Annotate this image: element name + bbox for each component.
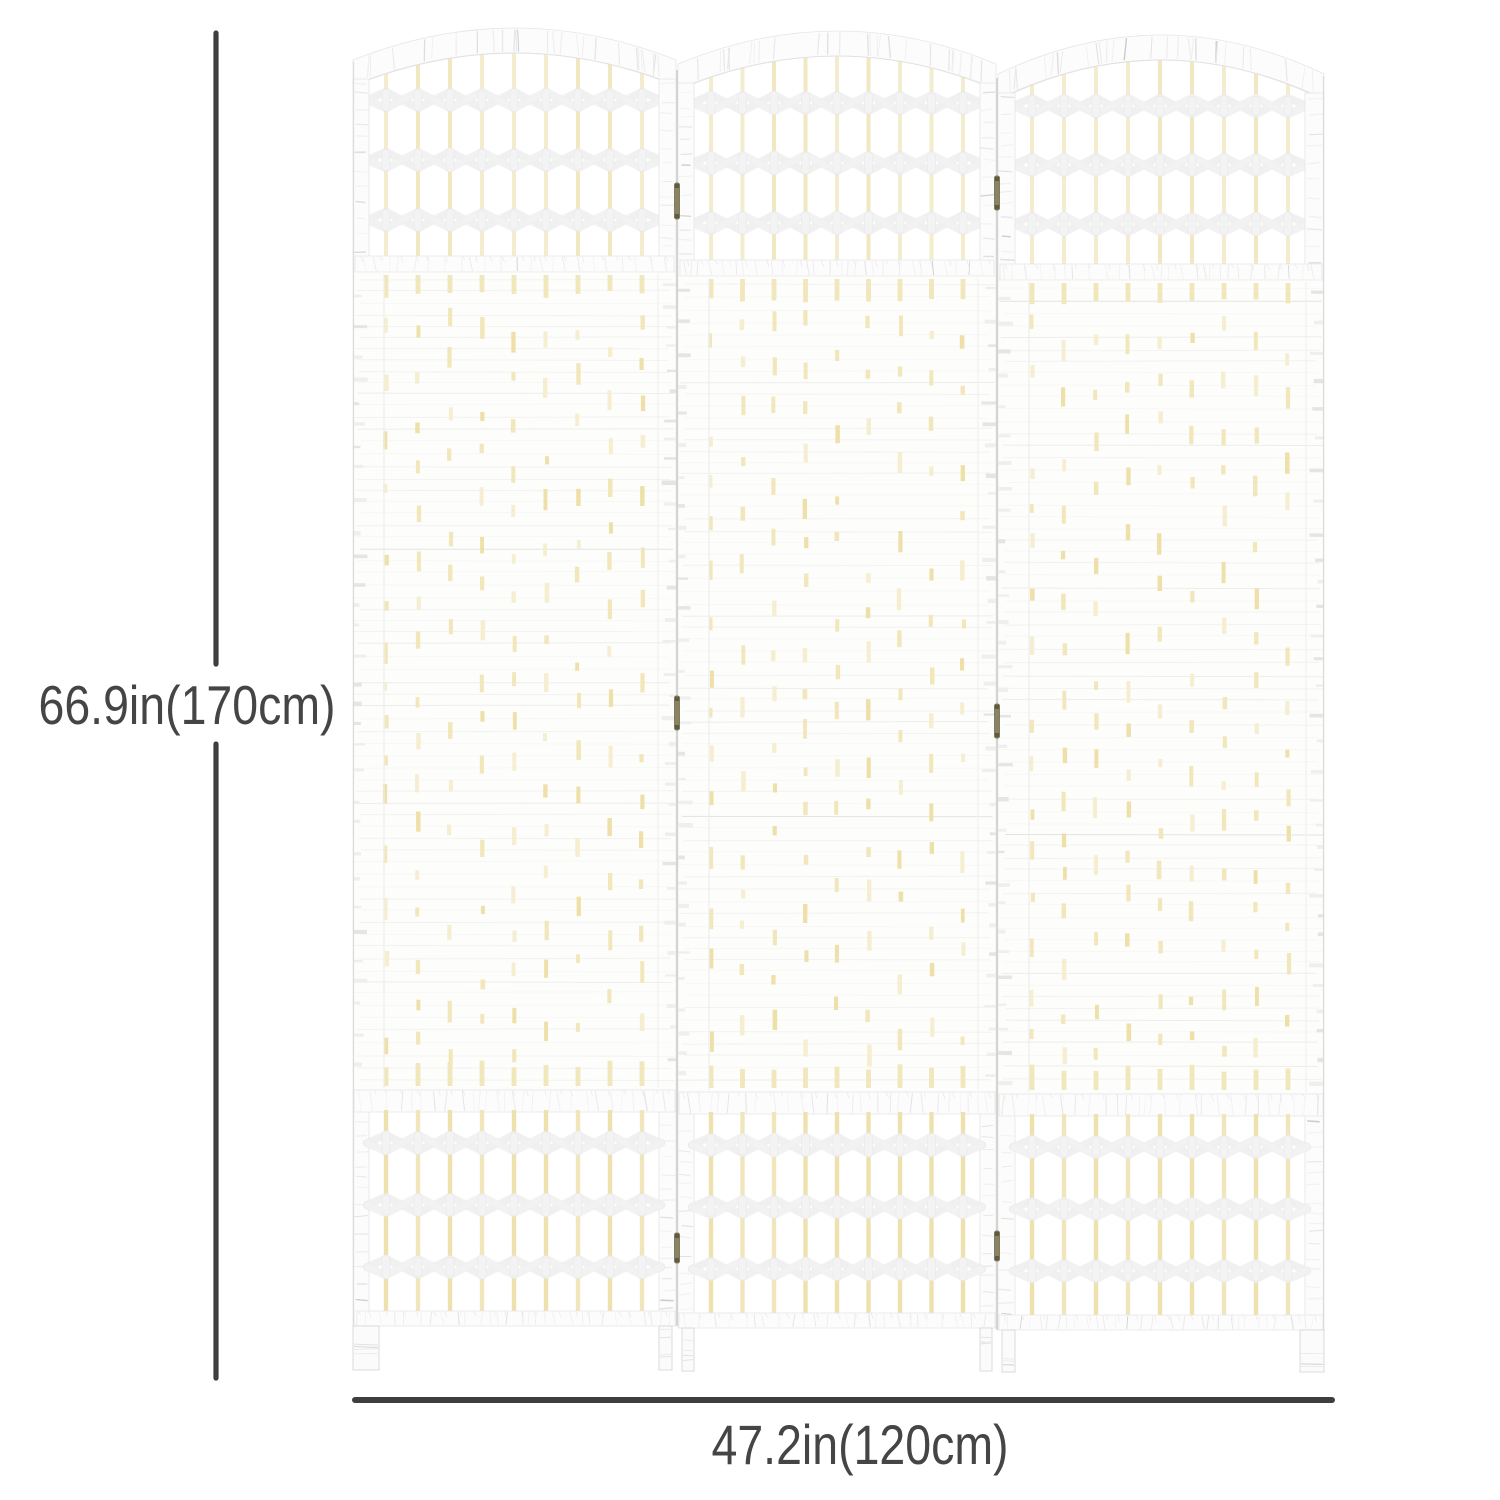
svg-text:66.9in(170cm): 66.9in(170cm): [39, 674, 336, 736]
svg-text:47.2in(120cm): 47.2in(120cm): [712, 1413, 1009, 1476]
